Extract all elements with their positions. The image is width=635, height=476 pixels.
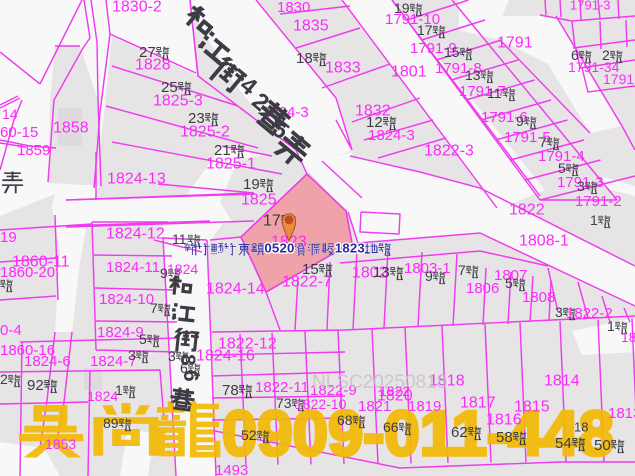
svg-text:1822-10: 1822-10 [295,396,347,412]
svg-text:1824-10: 1824-10 [99,291,154,308]
svg-text:1823: 1823 [335,241,365,256]
svg-text:1825-3: 1825-3 [153,93,203,110]
svg-text:19: 19 [0,229,17,246]
svg-text:0-4: 0-4 [0,322,22,339]
svg-text:1824-13: 1824-13 [107,171,166,188]
svg-text:1: 1 [607,318,615,334]
svg-text:1791: 1791 [603,71,634,87]
svg-text:15: 15 [444,44,460,60]
svg-text:1791-2: 1791-2 [575,193,622,210]
svg-text:13: 13 [465,67,481,83]
svg-text:1813: 1813 [608,405,635,422]
svg-text:1825: 1825 [241,192,277,209]
svg-text:1824-6: 1824-6 [24,353,71,370]
svg-text:9: 9 [516,113,524,129]
svg-text:1801: 1801 [391,64,427,81]
svg-text:1819: 1819 [408,398,441,415]
svg-text:1791: 1791 [497,35,533,52]
svg-text:1824-16: 1824-16 [196,348,255,365]
svg-text:60-15: 60-15 [0,124,38,141]
svg-text:1853: 1853 [45,436,76,452]
svg-text:5: 5 [505,275,513,291]
svg-text:18: 18 [574,419,588,434]
svg-text:1824: 1824 [87,388,118,404]
svg-text:5: 5 [139,331,147,347]
svg-text:1822-7: 1822-7 [282,274,332,291]
svg-text:1858: 1858 [53,120,89,137]
svg-text:3: 3 [555,304,563,320]
svg-text:7: 7 [150,300,158,316]
svg-text:1830-2: 1830-2 [112,0,162,16]
svg-text:19: 19 [243,176,260,193]
svg-text:1808: 1808 [522,289,555,306]
svg-text:1824-14: 1824-14 [206,281,265,298]
svg-text:14: 14 [2,106,18,122]
svg-text:1822-2: 1822-2 [566,305,613,322]
svg-text:3: 3 [128,347,136,363]
svg-text:1860-20: 1860-20 [0,264,55,281]
svg-text:1833: 1833 [325,60,361,77]
svg-text:1815: 1815 [514,399,550,416]
svg-text:1: 1 [590,212,598,228]
svg-text:7: 7 [458,262,466,278]
svg-text:1825-2: 1825-2 [180,124,230,141]
svg-text:17: 17 [417,22,433,38]
svg-text:1493: 1493 [215,462,248,476]
svg-text:6: 6 [179,370,202,382]
svg-text:66: 66 [383,419,399,435]
svg-text:78: 78 [222,382,239,399]
svg-text:1817: 1817 [460,395,496,412]
svg-text:1824-3: 1824-3 [368,127,415,144]
svg-text:52: 52 [241,427,257,443]
svg-text:1824-11: 1824-11 [106,259,160,276]
svg-text:1859: 1859 [17,142,50,159]
svg-text:1791-3: 1791-3 [570,0,610,12]
svg-text:89: 89 [103,415,119,431]
svg-text:92: 92 [27,377,44,394]
svg-text:1822-11: 1822-11 [255,379,309,396]
svg-text:58: 58 [496,429,513,446]
svg-text:11: 11 [487,85,502,101]
svg-text:13: 13 [373,264,390,281]
svg-text:1822: 1822 [509,202,545,219]
svg-text:18: 18 [296,50,313,67]
svg-text:0520: 0520 [264,241,294,256]
svg-text:68: 68 [337,412,353,428]
svg-text:1814: 1814 [544,373,580,390]
svg-text:1828: 1828 [135,57,171,74]
svg-text:2: 2 [0,371,8,387]
svg-text:1824: 1824 [167,261,198,277]
svg-text:1822-3: 1822-3 [424,143,474,160]
svg-text:17: 17 [263,213,281,230]
svg-text:1824-9: 1824-9 [97,324,144,341]
svg-text:54: 54 [555,435,572,452]
svg-text:1821: 1821 [358,398,391,415]
svg-text:18: 18 [621,329,635,345]
svg-text:73: 73 [276,395,292,411]
svg-text:1824-12: 1824-12 [106,226,165,243]
svg-text:3: 3 [577,178,585,194]
svg-text:1806: 1806 [466,280,499,297]
svg-text:50: 50 [594,437,611,454]
svg-text:1825-1: 1825-1 [206,156,256,173]
svg-text:9: 9 [425,268,433,284]
svg-text:8: 8 [176,354,199,366]
svg-text:1835: 1835 [293,18,329,35]
svg-text:3: 3 [168,348,176,364]
svg-text:1830: 1830 [277,0,310,16]
svg-text:62: 62 [451,424,468,441]
svg-text:1808-1: 1808-1 [519,233,569,250]
